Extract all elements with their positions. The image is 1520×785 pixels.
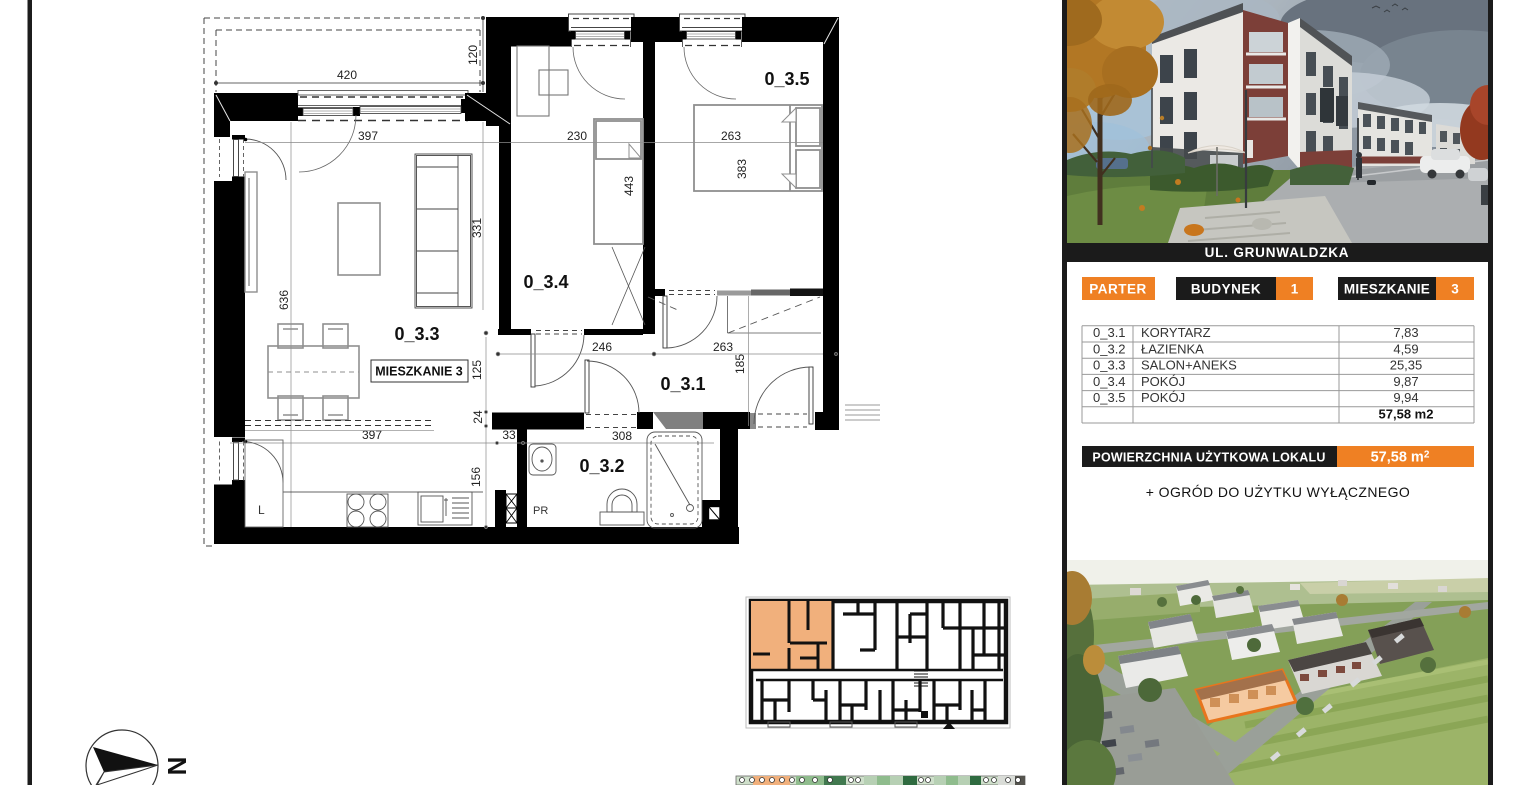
svg-text:L: L (258, 503, 265, 517)
svg-text:PR: PR (533, 505, 548, 517)
svg-text:9,94: 9,94 (1393, 390, 1418, 405)
svg-text:KORYTARZ: KORYTARZ (1141, 325, 1211, 340)
svg-text:UL. GRUNWALDZKA: UL. GRUNWALDZKA (1205, 245, 1350, 260)
svg-text:9,87: 9,87 (1393, 374, 1418, 389)
svg-text:263: 263 (721, 129, 741, 143)
svg-text:0_3.4: 0_3.4 (1093, 374, 1126, 389)
svg-text:383: 383 (735, 159, 749, 179)
svg-text:3: 3 (1451, 282, 1459, 297)
svg-text:120: 120 (466, 45, 480, 65)
svg-text:0_3.1: 0_3.1 (660, 374, 705, 394)
svg-text:24: 24 (471, 410, 485, 424)
svg-text:POWIERZCHNIA UŻYTKOWA LOKALU: POWIERZCHNIA UŻYTKOWA LOKALU (1092, 450, 1325, 465)
svg-text:33: 33 (502, 428, 516, 442)
svg-text:0_3.5: 0_3.5 (1093, 390, 1126, 405)
svg-text:0_3.3: 0_3.3 (394, 324, 439, 344)
svg-text:263: 263 (713, 340, 733, 354)
svg-text:185: 185 (733, 354, 747, 374)
svg-text:57,58 m2: 57,58 m2 (1379, 407, 1434, 422)
svg-text:636: 636 (277, 290, 291, 310)
svg-text:7,83: 7,83 (1393, 325, 1418, 340)
svg-text:N: N (162, 757, 192, 776)
svg-text:125: 125 (470, 360, 484, 380)
svg-text:246: 246 (592, 340, 612, 354)
svg-text:PARTER: PARTER (1089, 282, 1147, 297)
svg-text:+ OGRÓD DO UŻYTKU WYŁĄCZNEGO: + OGRÓD DO UŻYTKU WYŁĄCZNEGO (1146, 483, 1410, 500)
svg-text:MIESZKANIE 3: MIESZKANIE 3 (375, 365, 463, 379)
svg-text:230: 230 (567, 129, 587, 143)
svg-text:POKÓJ: POKÓJ (1141, 374, 1185, 389)
svg-text:0_3.4: 0_3.4 (523, 272, 568, 292)
svg-text:MIESZKANIE: MIESZKANIE (1344, 282, 1430, 297)
svg-text:57,58 m2: 57,58 m2 (1371, 450, 1430, 466)
svg-text:POKÓJ: POKÓJ (1141, 390, 1185, 405)
svg-text:443: 443 (622, 176, 636, 196)
svg-text:0_3.1: 0_3.1 (1093, 325, 1126, 340)
svg-text:397: 397 (362, 428, 382, 442)
svg-text:420: 420 (337, 68, 357, 82)
svg-text:BUDYNEK: BUDYNEK (1191, 282, 1261, 297)
svg-text:4,59: 4,59 (1393, 341, 1418, 356)
svg-text:0_3.2: 0_3.2 (579, 456, 624, 476)
svg-text:308: 308 (612, 429, 632, 443)
svg-text:1: 1 (1291, 282, 1299, 297)
svg-text:ŁAZIENKA: ŁAZIENKA (1141, 341, 1204, 356)
svg-text:0_3.3: 0_3.3 (1093, 358, 1126, 373)
svg-text:156: 156 (469, 467, 483, 487)
svg-text:0_3.2: 0_3.2 (1093, 341, 1126, 356)
svg-text:SALON+ANEKS: SALON+ANEKS (1141, 358, 1237, 373)
svg-text:0_3.5: 0_3.5 (764, 69, 809, 89)
svg-text:397: 397 (358, 129, 378, 143)
svg-text:25,35: 25,35 (1390, 358, 1423, 373)
